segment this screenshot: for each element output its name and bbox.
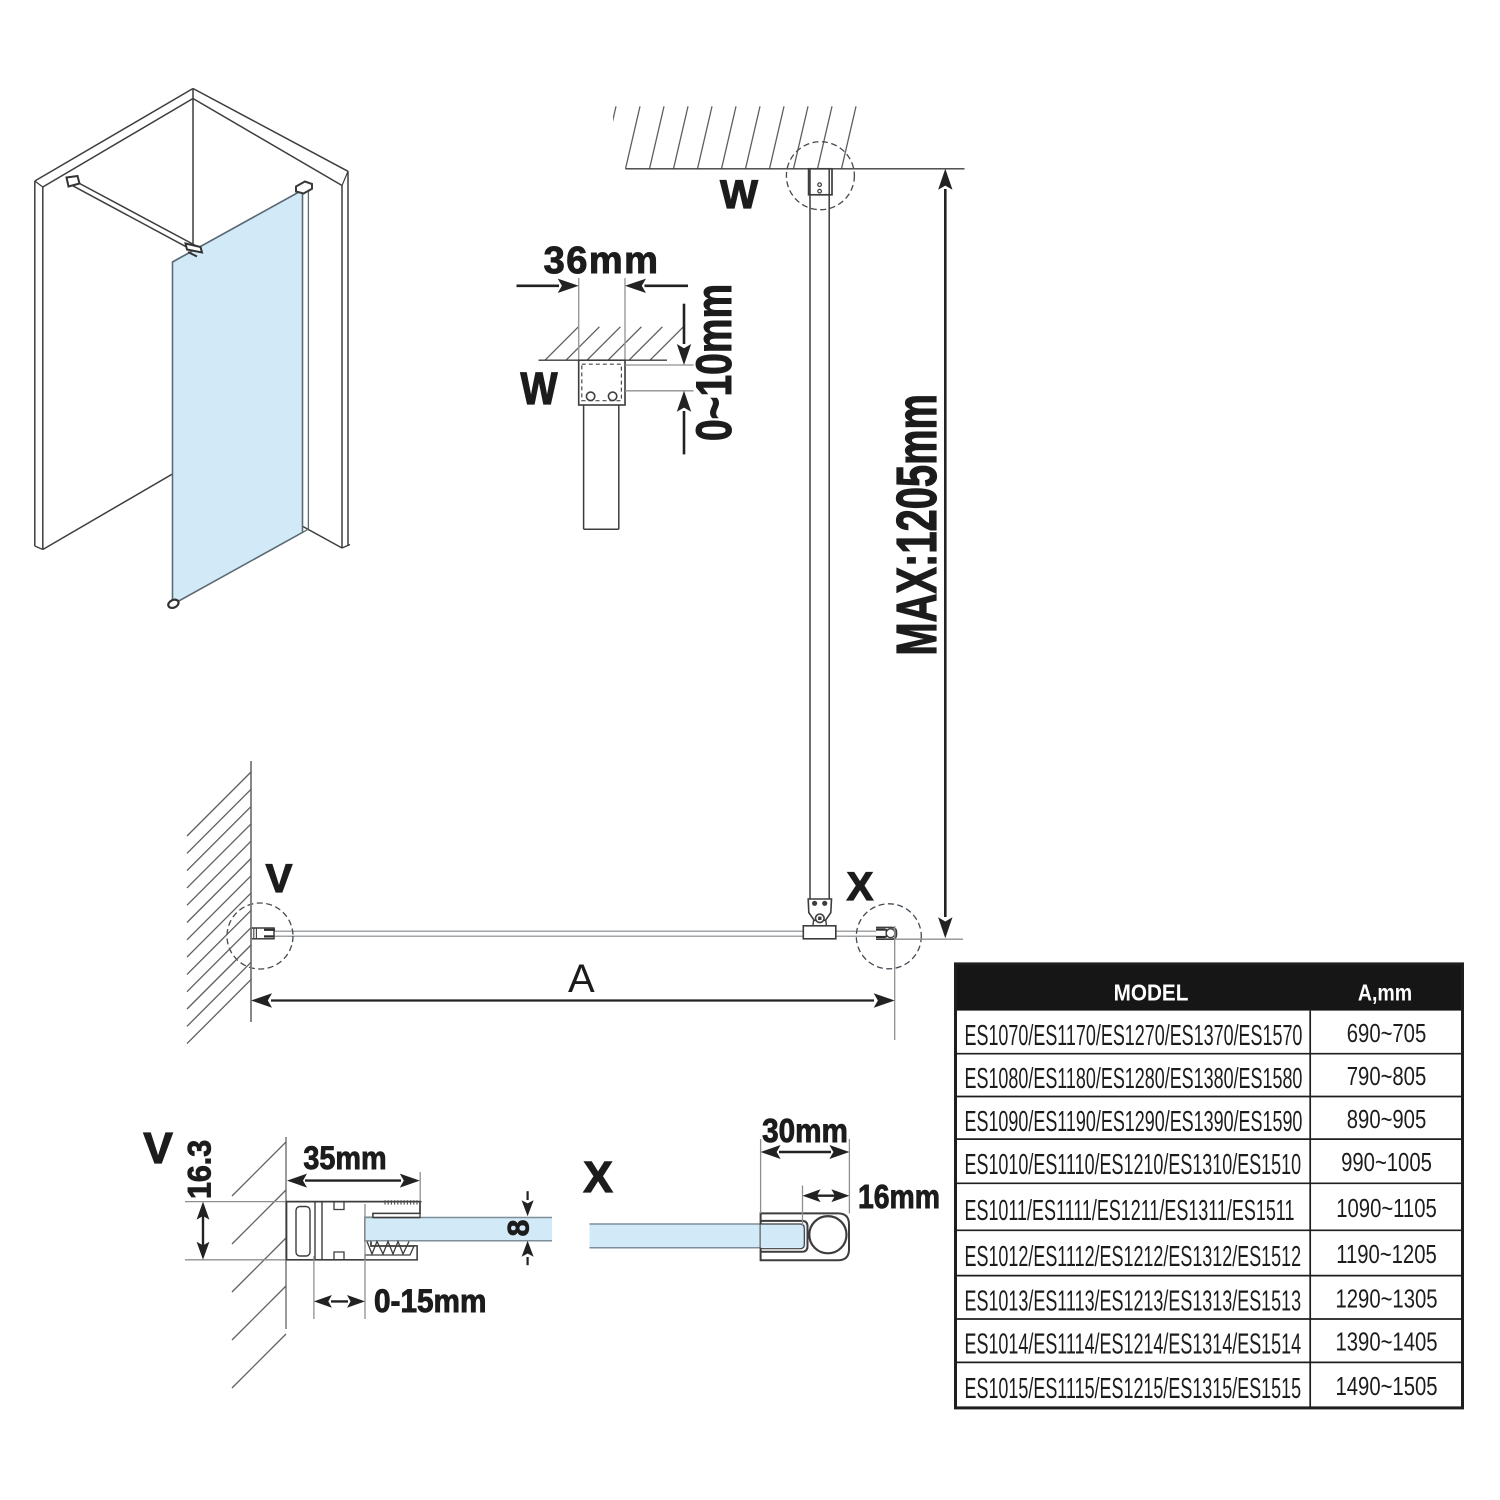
svg-text:ES1010/ES1110/ES1210/ES1310/ES: ES1010/ES1110/ES1210/ES1310/ES1510 — [965, 1149, 1302, 1181]
svg-text:ES1014/ES1114/ES1214/ES1314/ES: ES1014/ES1114/ES1214/ES1314/ES1514 — [965, 1328, 1302, 1360]
svg-text:MAX:1205mm: MAX:1205mm — [885, 394, 949, 656]
svg-text:35mm: 35mm — [303, 1141, 386, 1177]
svg-text:ES1012/ES1112/ES1212/ES1312/ES: ES1012/ES1112/ES1212/ES1312/ES1512 — [965, 1241, 1302, 1273]
svg-text:ES1070/ES1170/ES1270/ES1370/ES: ES1070/ES1170/ES1270/ES1370/ES1570 — [965, 1020, 1303, 1052]
svg-text:8: 8 — [503, 1220, 536, 1237]
svg-text:30mm: 30mm — [762, 1113, 848, 1150]
svg-text:X: X — [847, 865, 874, 909]
svg-text:790~805: 790~805 — [1347, 1062, 1426, 1091]
svg-text:1390~1405: 1390~1405 — [1336, 1327, 1438, 1356]
svg-text:X: X — [583, 1153, 612, 1202]
svg-text:A: A — [568, 957, 595, 1001]
svg-text:ES1015/ES1115/ES1215/ES1315/ES: ES1015/ES1115/ES1215/ES1315/ES1515 — [965, 1373, 1302, 1405]
svg-text:ES1090/ES1190/ES1290/ES1390/ES: ES1090/ES1190/ES1290/ES1390/ES1590 — [965, 1106, 1303, 1138]
svg-text:16.3: 16.3 — [182, 1140, 218, 1199]
svg-text:ES1013/ES1113/ES1213/ES1313/ES: ES1013/ES1113/ES1213/ES1313/ES1513 — [965, 1285, 1302, 1317]
svg-text:1490~1505: 1490~1505 — [1336, 1372, 1438, 1401]
svg-text:ES1080/ES1180/ES1280/ES1380/ES: ES1080/ES1180/ES1280/ES1380/ES1580 — [965, 1063, 1303, 1095]
svg-text:A,mm: A,mm — [1358, 980, 1412, 1006]
svg-text:36mm: 36mm — [544, 240, 660, 282]
svg-text:16mm: 16mm — [858, 1178, 940, 1216]
svg-text:890~905: 890~905 — [1347, 1104, 1426, 1133]
svg-text:MODEL: MODEL — [1114, 979, 1189, 1005]
svg-text:W: W — [521, 363, 558, 413]
svg-text:990~1005: 990~1005 — [1341, 1148, 1432, 1177]
svg-text:1290~1305: 1290~1305 — [1336, 1284, 1438, 1313]
svg-text:V: V — [143, 1124, 173, 1173]
svg-text:V: V — [266, 857, 293, 901]
svg-text:W: W — [720, 173, 758, 217]
svg-text:0~10mm: 0~10mm — [685, 284, 742, 441]
svg-text:1190~1205: 1190~1205 — [1336, 1239, 1436, 1268]
svg-text:0-15mm: 0-15mm — [374, 1283, 486, 1319]
svg-text:ES1011/ES1111/ES1211/ES1311/ES: ES1011/ES1111/ES1211/ES1311/ES1511 — [965, 1195, 1295, 1227]
svg-text:1090~1105: 1090~1105 — [1336, 1193, 1436, 1222]
svg-text:690~705: 690~705 — [1347, 1019, 1426, 1048]
